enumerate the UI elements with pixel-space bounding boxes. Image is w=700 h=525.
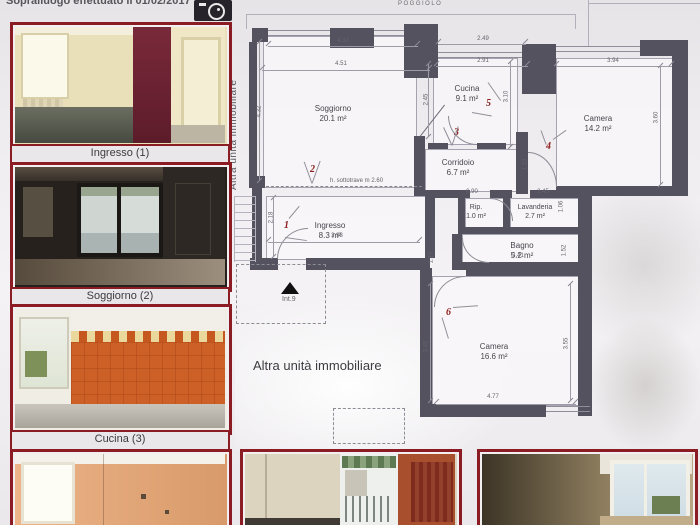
room-name: Rip.	[456, 203, 496, 212]
dimension-label: 2.45	[424, 88, 431, 112]
hall-floor	[171, 125, 225, 143]
wall-corner-line	[103, 454, 104, 525]
dimension-label: 2.91	[468, 58, 498, 65]
room-area: 2.7 m²	[525, 213, 545, 220]
dimension-label: 4.32	[328, 38, 358, 45]
floor	[245, 518, 340, 525]
stairwell	[234, 196, 256, 262]
photo-marker-5: 5	[486, 98, 491, 109]
floor	[15, 107, 137, 143]
photo-bottom-2-image	[245, 454, 457, 525]
room-area: 16.6 m²	[480, 352, 507, 361]
upper-wall	[71, 309, 225, 331]
dimension-line	[438, 44, 526, 45]
wall-segment	[452, 234, 462, 262]
photo-marker-6: 6	[446, 307, 451, 318]
room-area: 9.1 m²	[456, 94, 479, 103]
floor	[15, 259, 225, 285]
photo-soggiorno	[10, 162, 232, 292]
window	[21, 462, 75, 524]
right-door	[175, 183, 211, 255]
room-name: Soggiorno	[293, 104, 373, 114]
room-area: 20.1 m²	[319, 114, 346, 123]
window	[610, 460, 690, 524]
door-frame-line	[265, 454, 267, 525]
wall-socket	[165, 510, 169, 514]
room-name: Bagno	[482, 241, 562, 251]
other-unit-outline	[333, 408, 405, 444]
dimension-label: 3.94	[598, 58, 628, 65]
photo-bottom-3-image	[482, 454, 693, 525]
photo-caption-cucina: Cucina (3)	[10, 430, 230, 451]
marker-sight-line	[541, 130, 547, 144]
room-area: 14.2 m²	[584, 124, 611, 133]
room-name: Corridoio	[418, 158, 498, 168]
dimension-label: 3.60	[654, 106, 661, 130]
dimension-label: 4.77	[478, 394, 508, 401]
side-window	[23, 187, 53, 237]
photo-bottom-2	[240, 449, 462, 525]
dimension-label: 0.90	[457, 189, 487, 196]
room-label-soggiorno: Soggiorno 20.1 m²	[293, 104, 373, 124]
wall-segment	[578, 268, 592, 416]
floor	[600, 516, 692, 525]
balcony-line	[575, 14, 576, 29]
photo-cucina-image	[15, 309, 227, 430]
dimension-label: 1.06	[559, 195, 566, 219]
entrance-label: Int.9	[282, 296, 296, 303]
building	[345, 470, 367, 496]
dimension-line	[262, 70, 430, 71]
room-name: Camera	[454, 342, 534, 352]
camera-flash-icon	[199, 3, 206, 6]
wall-segment	[466, 268, 578, 276]
balcony-line	[246, 14, 576, 15]
dimension-line	[268, 46, 418, 47]
window	[21, 33, 69, 99]
watermark-photo	[590, 320, 700, 450]
wall-segment	[458, 227, 578, 234]
room-label-corridoio: Corridoio 6.7 m²	[418, 158, 498, 178]
balcony-line	[588, 0, 589, 46]
dimension-label: 4.32	[257, 100, 264, 124]
floor	[15, 404, 225, 428]
room-label-camera-1: Camera 14.2 m²	[558, 114, 638, 134]
dimension-label: 1.52	[562, 239, 569, 263]
camera-icon	[194, 0, 232, 21]
dimension-label: 4.51	[326, 61, 356, 68]
photo-soggiorno-image	[15, 167, 227, 287]
tile-border-band	[71, 331, 225, 342]
wall-segment	[420, 404, 546, 417]
window-symbol	[268, 30, 330, 36]
door	[181, 37, 221, 129]
maroon-wall	[133, 27, 171, 143]
room-label-rip: Rip. 1.0 m²	[456, 203, 496, 221]
greenery	[652, 496, 680, 514]
radiator	[411, 462, 453, 522]
greenery	[25, 351, 47, 377]
photo-bottom-1	[10, 449, 232, 525]
awning	[342, 456, 396, 468]
wall-segment	[672, 42, 688, 192]
dimension-label: 1.10	[523, 153, 530, 177]
balcony-rail	[345, 496, 393, 522]
other-unit-label: Altra unità immobiliare	[253, 358, 382, 373]
dimension-line	[556, 66, 672, 67]
beam-height-note: h. sottotrave m 2.60	[330, 178, 383, 184]
dimension-line	[436, 66, 528, 67]
dimension-label: 3.55	[564, 332, 571, 356]
room-name: Ingresso	[290, 221, 370, 231]
beam-dashed-line	[266, 186, 422, 187]
dimension-label: 3.41	[503, 253, 533, 260]
dimension-label: 3.10	[504, 85, 511, 109]
entrance-triangle-icon	[281, 282, 299, 294]
balcony-line	[246, 14, 247, 29]
camera-lens-icon	[208, 3, 225, 20]
inspection-note: Sopralluogo effettuato il 01/02/2017	[6, 0, 196, 7]
photo-marker-4: 4	[546, 141, 551, 152]
wall-segment	[522, 44, 556, 94]
wall-segment	[578, 190, 592, 272]
photo-ingresso	[10, 22, 232, 150]
photo-cucina	[10, 304, 232, 435]
room-area: 6.7 m²	[447, 168, 470, 177]
dimension-line	[436, 404, 576, 405]
camera-lens-dot-icon	[217, 8, 220, 11]
dimension-label: 3.93	[322, 233, 352, 240]
room-name: Camera	[558, 114, 638, 124]
window-symbol	[556, 46, 642, 52]
window-symbol	[374, 30, 404, 36]
window-symbol	[546, 406, 590, 412]
room-area: 1.0 m²	[466, 213, 486, 220]
photo-ingresso-image	[15, 27, 227, 145]
room-label-camera-2: Camera 16.6 m²	[454, 342, 534, 362]
photo-bottom-3	[477, 449, 698, 525]
window-mullion	[644, 460, 647, 516]
other-unit-outline	[236, 264, 326, 324]
dimension-label: 1.10	[429, 246, 436, 270]
french-door-pane	[121, 187, 159, 253]
dimension-line	[268, 242, 420, 243]
dimension-label: 2.49	[468, 36, 498, 43]
wall-segment	[477, 143, 506, 149]
flyer-page: Sopralluogo effettuato il 01/02/2017 POG…	[0, 0, 700, 525]
balcony-line	[588, 3, 700, 4]
photo-bottom-1-image	[15, 454, 227, 525]
dimension-label: 2.18	[269, 206, 276, 230]
french-door-pane	[81, 187, 117, 253]
wall-segment	[428, 143, 448, 149]
dimension-label: 2.45	[528, 189, 558, 196]
photo-marker-1: 1	[284, 220, 289, 231]
wall-socket	[141, 494, 146, 499]
door-arc	[528, 152, 557, 187]
balcony-label: POGGIOLO	[398, 1, 442, 7]
dimension-label: 3.45	[424, 335, 431, 359]
tiled-wall	[71, 342, 225, 404]
